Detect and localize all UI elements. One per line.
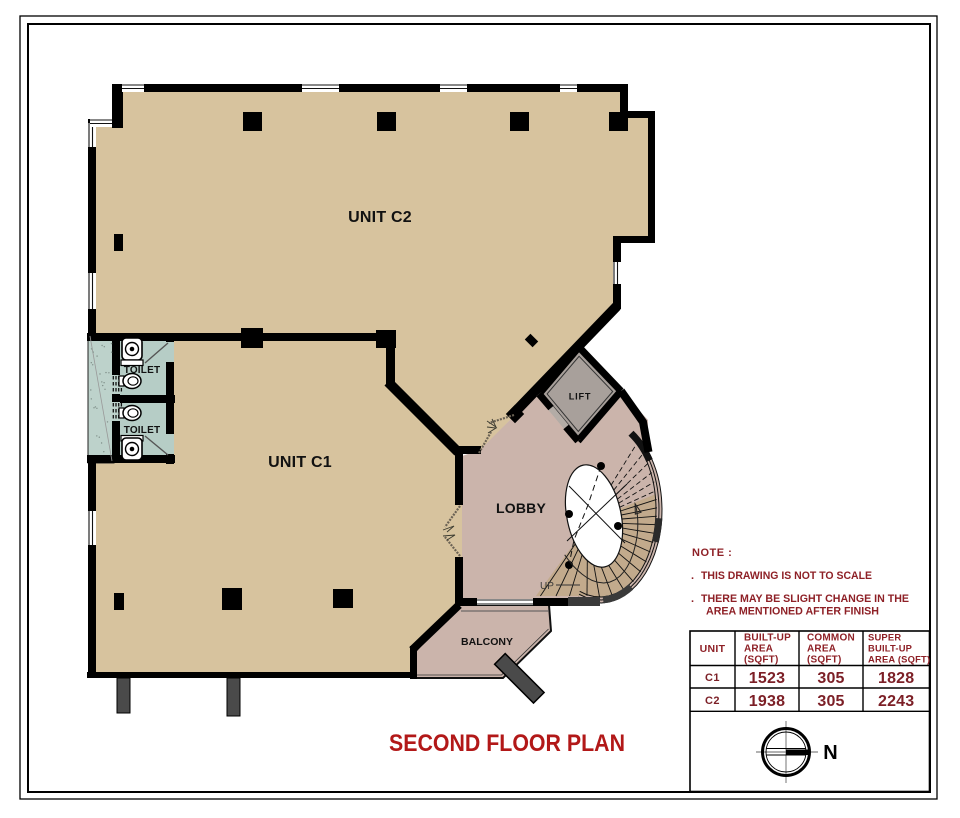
svg-text:LIFT: LIFT xyxy=(569,392,592,402)
svg-text:(SQFT): (SQFT) xyxy=(744,655,779,666)
svg-text:305: 305 xyxy=(817,670,844,687)
svg-text:.: . xyxy=(691,570,694,582)
svg-text:COMMON: COMMON xyxy=(807,633,855,644)
svg-text:AREA MENTIONED AFTER FINISH: AREA MENTIONED AFTER FINISH xyxy=(706,606,879,618)
svg-text:C1: C1 xyxy=(705,672,720,684)
svg-text:UNIT C2: UNIT C2 xyxy=(348,209,412,226)
svg-text:NOTE :: NOTE : xyxy=(692,547,732,559)
svg-text:UNIT C1: UNIT C1 xyxy=(268,454,332,471)
svg-text:SECOND FLOOR PLAN: SECOND FLOOR PLAN xyxy=(389,730,625,757)
svg-text:AREA: AREA xyxy=(744,644,773,655)
svg-text:AREA (SQFT): AREA (SQFT) xyxy=(868,654,930,665)
svg-text:UNIT: UNIT xyxy=(700,643,726,655)
svg-text:C2: C2 xyxy=(705,695,720,707)
svg-text:1828: 1828 xyxy=(878,670,914,687)
svg-text:THIS DRAWING IS NOT TO SCALE: THIS DRAWING IS NOT TO SCALE xyxy=(701,570,872,582)
svg-text:.: . xyxy=(691,593,694,605)
svg-text:305: 305 xyxy=(817,693,844,710)
svg-text:LOBBY: LOBBY xyxy=(496,500,546,516)
svg-text:BUILT-UP: BUILT-UP xyxy=(868,643,912,654)
svg-text:TOILET: TOILET xyxy=(124,365,161,376)
svg-text:BALCONY: BALCONY xyxy=(461,636,513,648)
svg-text:AREA: AREA xyxy=(807,644,836,655)
svg-text:SUPER: SUPER xyxy=(868,632,901,643)
svg-text:BUILT-UP: BUILT-UP xyxy=(744,633,791,644)
svg-text:1938: 1938 xyxy=(749,693,785,710)
svg-text:THERE MAY BE SLIGHT CHANGE IN: THERE MAY BE SLIGHT CHANGE IN THE xyxy=(701,593,909,605)
svg-text:UP: UP xyxy=(540,581,554,592)
svg-text:2243: 2243 xyxy=(878,693,914,710)
svg-text:N: N xyxy=(823,742,837,764)
svg-text:1523: 1523 xyxy=(749,670,785,687)
svg-text:(SQFT): (SQFT) xyxy=(807,655,842,666)
svg-text:TOILET: TOILET xyxy=(124,425,161,436)
